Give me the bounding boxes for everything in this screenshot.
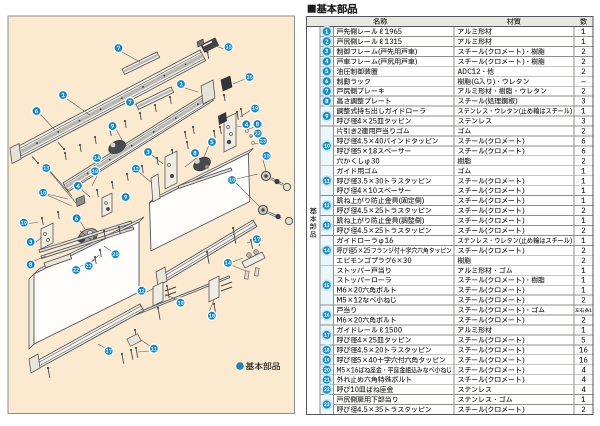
svg-text:呼び径4×10スペーサー: 呼び径4×10スペーサー <box>337 186 412 197</box>
svg-text:スチール(クロメート): スチール(クロメート) <box>458 366 525 376</box>
svg-text:スチール(クロメート): スチール(クロメート) <box>458 197 525 207</box>
svg-text:1: 1 <box>581 267 586 277</box>
svg-text:スチール(クロメート): スチール(クロメート) <box>458 187 525 197</box>
svg-text:18: 18 <box>176 299 183 307</box>
svg-text:ADC12・他: ADC12・他 <box>458 67 495 78</box>
svg-text:スチール(処理鋼板): スチール(処理鋼板) <box>458 97 518 108</box>
svg-text:エビモンゴプラグ6×30: エビモンゴプラグ6×30 <box>337 256 412 267</box>
svg-text:1: 1 <box>581 38 586 48</box>
svg-text:M5×12なべ小ねじ: M5×12なべ小ねじ <box>337 296 397 307</box>
svg-text:8: 8 <box>256 121 260 129</box>
svg-text:跳ね上がり防止金具(固定側): 跳ね上がり防止金具(固定側) <box>336 196 425 207</box>
svg-text:スチール(クロメート): スチール(クロメート) <box>458 287 525 297</box>
svg-text:16: 16 <box>579 356 588 366</box>
svg-text:戸当り: 戸当り <box>336 306 358 317</box>
svg-text:品: 品 <box>310 231 317 241</box>
svg-text:4: 4 <box>581 366 586 376</box>
svg-text:2: 2 <box>581 48 586 58</box>
svg-text:スチール(クロメート): スチール(クロメート) <box>458 217 525 227</box>
svg-text:15: 15 <box>324 282 330 289</box>
svg-text:13: 13 <box>324 222 330 229</box>
svg-text:2: 2 <box>581 297 586 307</box>
svg-text:18: 18 <box>91 168 98 176</box>
svg-text:6: 6 <box>581 137 585 147</box>
svg-text:9: 9 <box>111 123 115 131</box>
svg-text:5: 5 <box>209 139 214 147</box>
svg-text:高さ調整プレート: 高さ調整プレート <box>337 97 392 108</box>
svg-text:アルミ形材: アルミ形材 <box>458 27 493 38</box>
svg-text:スチール(クロメート): スチール(クロメート) <box>458 376 525 386</box>
svg-text:1: 1 <box>581 197 586 207</box>
svg-text:4: 4 <box>581 386 586 396</box>
svg-text:片引き2連用戸当りゴム: 片引き2連用戸当りゴム <box>337 127 410 138</box>
svg-text:スチール(クロメート)・樹脂: スチール(クロメート)・樹脂 <box>458 58 546 68</box>
svg-text:調整式持ち出しガイドローラ: 調整式持ち出しガイドローラ <box>337 107 427 118</box>
svg-text:呼び径4.5×35トラスタッピン: 呼び径4.5×35トラスタッピン <box>337 405 432 416</box>
svg-text:M5×16ばね座金・平座金組込みなべ小ねじ: M5×16ばね座金・平座金組込みなべ小ねじ <box>337 365 453 376</box>
svg-text:9: 9 <box>325 113 328 121</box>
svg-text:23: 23 <box>324 401 330 408</box>
svg-text:14: 14 <box>224 260 232 268</box>
svg-text:スチール(クロメート)・樹脂: スチール(クロメート)・樹脂 <box>458 277 546 287</box>
svg-text:アルミ形材: アルミ形材 <box>458 325 493 336</box>
svg-text:3: 3 <box>325 48 328 56</box>
svg-text:—: — <box>581 78 587 88</box>
svg-text:9: 9 <box>124 194 128 202</box>
svg-text:1: 1 <box>324 28 328 36</box>
svg-text:2: 2 <box>581 247 586 257</box>
svg-text:呼び径4.5×20トラスタッピン: 呼び径4.5×20トラスタッピン <box>337 345 432 356</box>
svg-text:17: 17 <box>105 348 113 356</box>
svg-text:8: 8 <box>193 150 197 158</box>
svg-text:20: 20 <box>112 251 118 259</box>
svg-text:2: 2 <box>581 58 586 68</box>
svg-text:ステンレス・ウレタン(止め輪はスチール): ステンレス・ウレタン(止め輪はスチール) <box>458 108 573 118</box>
svg-text:スチール(クロメート): スチール(クロメート) <box>458 346 525 356</box>
svg-text:ガイドレールℓ1500: ガイドレールℓ1500 <box>337 325 403 336</box>
svg-text:油圧制御装置: 油圧制御装置 <box>337 67 378 78</box>
svg-text:戸先側レールℓ1965: 戸先側レールℓ1965 <box>336 27 403 38</box>
svg-text:16: 16 <box>579 346 588 356</box>
svg-text:1: 1 <box>581 237 586 247</box>
svg-text:1: 1 <box>581 277 586 287</box>
svg-text:アルミ形材・樹脂・ウレタン: アルミ形材・樹脂・ウレタン <box>458 87 548 98</box>
svg-text:呼び径5×18スペーサー: 呼び径5×18スペーサー <box>337 146 412 157</box>
svg-text:12: 12 <box>324 202 330 209</box>
svg-text:17: 17 <box>253 236 261 244</box>
svg-text:10: 10 <box>228 177 235 185</box>
svg-text:2: 2 <box>581 227 586 237</box>
svg-text:1: 1 <box>581 217 586 227</box>
svg-text:基本部品: 基本部品 <box>246 360 281 373</box>
svg-text:2: 2 <box>581 317 586 327</box>
svg-text:10: 10 <box>324 142 330 149</box>
svg-text:1: 1 <box>581 287 586 297</box>
svg-text:ガイドローラφ16: ガイドローラφ16 <box>337 236 394 247</box>
svg-text:呼び径4.5×25トラスタッピン: 呼び径4.5×25トラスタッピン <box>337 206 432 217</box>
svg-text:ステンレス: ステンレス <box>458 118 493 128</box>
svg-text:12: 12 <box>138 287 146 295</box>
svg-text:11: 11 <box>324 177 330 184</box>
svg-text:1: 1 <box>581 108 586 118</box>
svg-text:アルミ形材・ゴム: アルミ形材・ゴム <box>458 266 513 277</box>
svg-text:11: 11 <box>150 345 157 353</box>
svg-text:2: 2 <box>581 257 586 267</box>
svg-text:ゴム: ゴム <box>458 166 472 177</box>
svg-text:6: 6 <box>75 215 79 223</box>
svg-text:M6×20六角ボルト: M6×20六角ボルト <box>337 286 397 297</box>
svg-text:スチール(クロメート): スチール(クロメート) <box>458 207 525 217</box>
svg-text:20: 20 <box>324 366 330 373</box>
svg-text:1: 1 <box>581 177 586 187</box>
svg-text:樹脂: 樹脂 <box>458 157 472 167</box>
svg-text:2: 2 <box>581 406 586 416</box>
svg-text:22: 22 <box>73 267 80 275</box>
svg-text:4: 4 <box>245 121 249 129</box>
svg-text:戸尻側扉用下部当り: 戸尻側扉用下部当り <box>336 395 399 406</box>
svg-text:10: 10 <box>39 189 46 197</box>
svg-text:スチール(クロメート): スチール(クロメート) <box>458 297 525 307</box>
svg-text:8: 8 <box>325 98 328 106</box>
svg-text:3: 3 <box>581 98 585 108</box>
svg-text:12: 12 <box>132 165 140 173</box>
svg-text:呼び径4.5×40バインドタッピン: 呼び径4.5×40バインドタッピン <box>337 136 439 147</box>
svg-text:8: 8 <box>29 262 33 270</box>
svg-text:スチール(クロメート): スチール(クロメート) <box>458 356 525 366</box>
svg-text:スチール(クロメート): スチール(クロメート) <box>458 137 525 147</box>
svg-text:スチール(クロメート): スチール(クロメート) <box>458 406 525 416</box>
svg-text:ステンレス・ウレタン(止め輪はスチール): ステンレス・ウレタン(止め輪はスチール) <box>458 237 573 247</box>
svg-text:スチール(クロメート): スチール(クロメート) <box>458 147 525 157</box>
svg-text:2: 2 <box>178 81 183 89</box>
svg-text:3: 3 <box>28 239 33 247</box>
svg-text:左右各1: 左右各1 <box>574 307 592 315</box>
svg-text:戸尻側レールℓ1315: 戸尻側レールℓ1315 <box>336 37 403 48</box>
svg-text:樹脂(G入り)・ウレタン: 樹脂(G入り)・ウレタン <box>458 77 530 88</box>
svg-text:スチール(クロメート): スチール(クロメート) <box>458 247 525 257</box>
svg-text:5: 5 <box>581 336 585 346</box>
svg-text:スチール(クロメート): スチール(クロメート) <box>458 177 525 187</box>
svg-text:呼び10皿ばね座金: 呼び10皿ばね座金 <box>337 385 394 396</box>
svg-text:制動ラック: 制動ラック <box>337 77 371 88</box>
svg-text:戸尻側ブレーキ: 戸尻側ブレーキ <box>336 87 385 98</box>
svg-text:スチール(クロメート): スチール(クロメート) <box>458 317 525 327</box>
svg-text:4: 4 <box>581 376 586 386</box>
svg-text:制御フレーム(戸先用戸車): 制御フレーム(戸先用戸車) <box>337 47 418 58</box>
svg-text:15: 15 <box>224 44 231 52</box>
svg-text:呼び径3.5×30トラスタッピン: 呼び径3.5×30トラスタッピン <box>337 176 432 187</box>
svg-text:1: 1 <box>581 28 586 38</box>
svg-text:ストッパー戸当り: ストッパー戸当り <box>337 266 392 277</box>
svg-text:呼び径5×25フランジ付十字穴六角タッピン: 呼び径5×25フランジ付十字穴六角タッピン <box>337 246 453 257</box>
svg-text:4: 4 <box>76 183 80 191</box>
svg-text:1: 1 <box>581 167 586 177</box>
svg-text:■基本部品: ■基本部品 <box>307 2 359 17</box>
svg-text:呼び径4×25皿タッピン: 呼び径4×25皿タッピン <box>337 335 412 346</box>
svg-text:16: 16 <box>324 312 330 319</box>
svg-text:外れ止め六角特殊ボルト: 外れ止め六角特殊ボルト <box>337 375 413 386</box>
svg-text:跳ね上がり防止金具(調整側): 跳ね上がり防止金具(調整側) <box>336 216 425 227</box>
svg-text:21: 21 <box>86 263 92 271</box>
svg-text:13: 13 <box>42 165 49 173</box>
svg-text:1: 1 <box>61 92 65 100</box>
svg-text:2: 2 <box>581 157 586 167</box>
svg-text:1: 1 <box>581 187 586 197</box>
svg-text:穴かくしφ30: 穴かくしφ30 <box>337 156 380 167</box>
svg-text:18: 18 <box>208 312 215 320</box>
svg-text:22: 22 <box>324 386 330 393</box>
svg-text:18: 18 <box>324 346 330 353</box>
svg-text:2: 2 <box>581 88 586 98</box>
svg-text:21: 21 <box>324 376 330 383</box>
svg-text:スチール(クロメート): スチール(クロメート) <box>458 336 525 346</box>
svg-text:スチール(クロメート)・樹脂: スチール(クロメート)・樹脂 <box>458 48 546 58</box>
svg-text:5: 5 <box>324 68 328 76</box>
svg-text:14: 14 <box>93 155 101 163</box>
svg-text:呼び径4.5×25トラスタッピン: 呼び径4.5×25トラスタッピン <box>337 226 432 237</box>
svg-text:呼び径5×40十字穴付六角タッピン: 呼び径5×40十字穴付六角タッピン <box>337 355 447 366</box>
svg-text:3: 3 <box>581 118 585 128</box>
svg-text:10: 10 <box>262 152 269 160</box>
svg-text:戸車フレーム(戸尻用戸車): 戸車フレーム(戸尻用戸車) <box>336 58 418 68</box>
svg-text:M6×20六角ボルト: M6×20六角ボルト <box>337 316 397 327</box>
svg-text:1: 1 <box>581 326 586 336</box>
svg-text:スチール(クロメート): スチール(クロメート) <box>458 227 525 237</box>
svg-text:19: 19 <box>324 356 330 363</box>
svg-text:6: 6 <box>35 108 39 116</box>
svg-text:スチール(クロメート)・ゴム: スチール(クロメート)・ゴム <box>458 306 546 317</box>
svg-text:ステンレス: ステンレス <box>458 386 493 396</box>
svg-text:2: 2 <box>581 207 586 217</box>
svg-text:ステンレス・ゴム: ステンレス・ゴム <box>458 395 513 406</box>
svg-text:ガイド用ゴム: ガイド用ゴム <box>337 166 378 177</box>
svg-text:2: 2 <box>581 128 586 138</box>
svg-text:アルミ形材: アルミ形材 <box>458 37 493 48</box>
svg-text:3: 3 <box>145 149 150 157</box>
svg-text:16: 16 <box>245 74 252 82</box>
svg-text:ストッパーローラ: ストッパーローラ <box>337 277 392 287</box>
svg-text:6: 6 <box>581 147 585 157</box>
svg-text:呼び径4×25皿タッピン: 呼び径4×25皿タッピン <box>337 117 412 128</box>
svg-text:23: 23 <box>260 138 266 146</box>
svg-text:19: 19 <box>20 219 27 227</box>
svg-text:ゴム: ゴム <box>458 127 472 138</box>
svg-text:1: 1 <box>581 396 586 406</box>
svg-text:2: 2 <box>581 68 586 78</box>
svg-text:19: 19 <box>251 105 258 113</box>
svg-text:樹脂: 樹脂 <box>458 257 472 267</box>
svg-text:6: 6 <box>325 78 328 86</box>
